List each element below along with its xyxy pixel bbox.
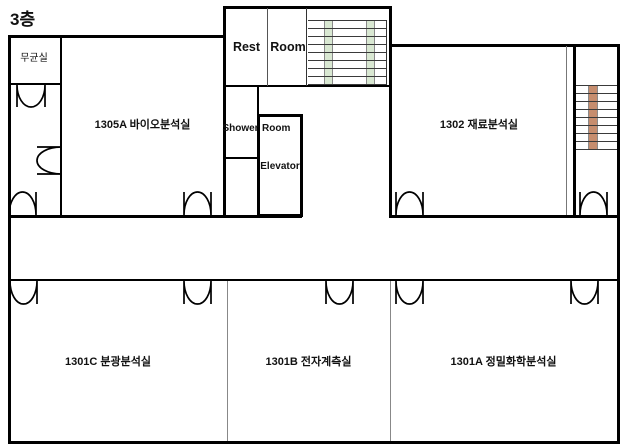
double-door-symbol [396,281,423,304]
double-door-symbol [184,281,211,304]
double-door-symbol [326,281,353,304]
double-door-symbol [580,192,607,215]
floor-plan-3f: 3층 무균실 1305A 바이오분석실 Rest Room [0,0,624,448]
double-door-symbol [184,192,211,215]
double-door-symbol [396,192,423,215]
door-symbols-layer [0,0,624,448]
double-door-symbol [10,281,37,304]
double-door-symbol [9,192,36,215]
double-door-symbol [37,147,61,174]
double-door-symbol [17,85,45,107]
double-door-symbol [571,281,598,304]
